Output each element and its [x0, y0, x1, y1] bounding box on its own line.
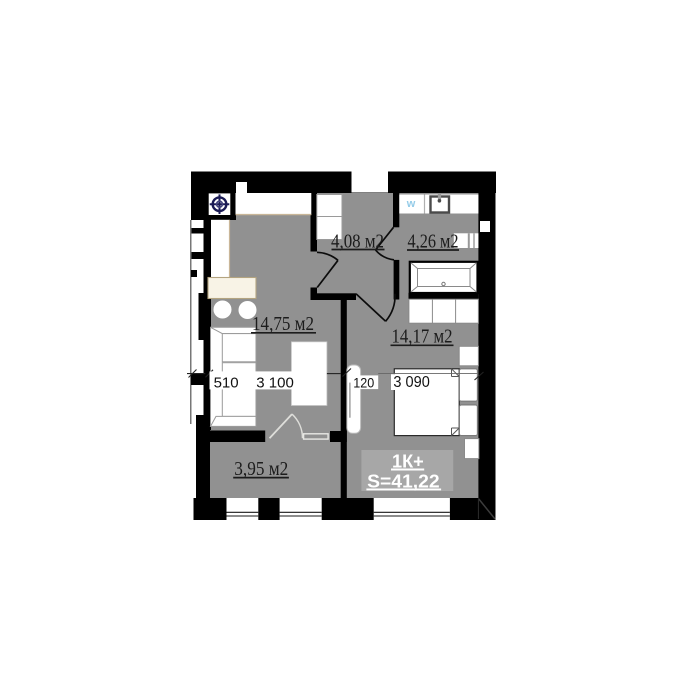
svg-text:510: 510 — [214, 374, 239, 391]
svg-text:3 090: 3 090 — [393, 374, 430, 391]
svg-text:120: 120 — [353, 374, 374, 390]
svg-text:14,17 м2: 14,17 м2 — [392, 325, 453, 347]
svg-text:3 100: 3 100 — [256, 374, 294, 391]
svg-text:1К+: 1К+ — [392, 451, 424, 471]
svg-text:w: w — [406, 198, 416, 210]
svg-text:S=41,22: S=41,22 — [367, 471, 440, 491]
svg-text:14,75 м2: 14,75 м2 — [252, 313, 314, 335]
